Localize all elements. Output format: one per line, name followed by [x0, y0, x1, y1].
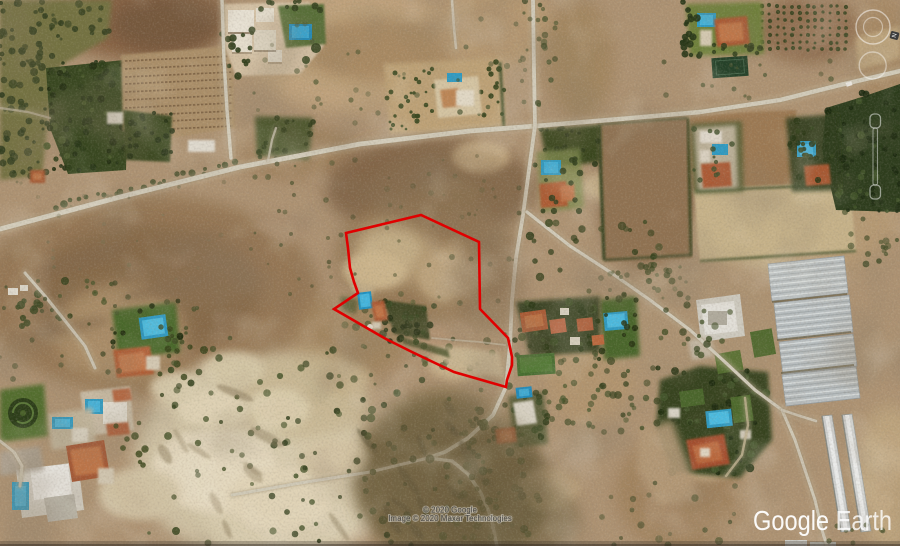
svg-text:Google Earth: Google Earth — [753, 505, 892, 536]
svg-text:Image © 2020 Maxar Technologie: Image © 2020 Maxar Technologies — [388, 514, 512, 523]
